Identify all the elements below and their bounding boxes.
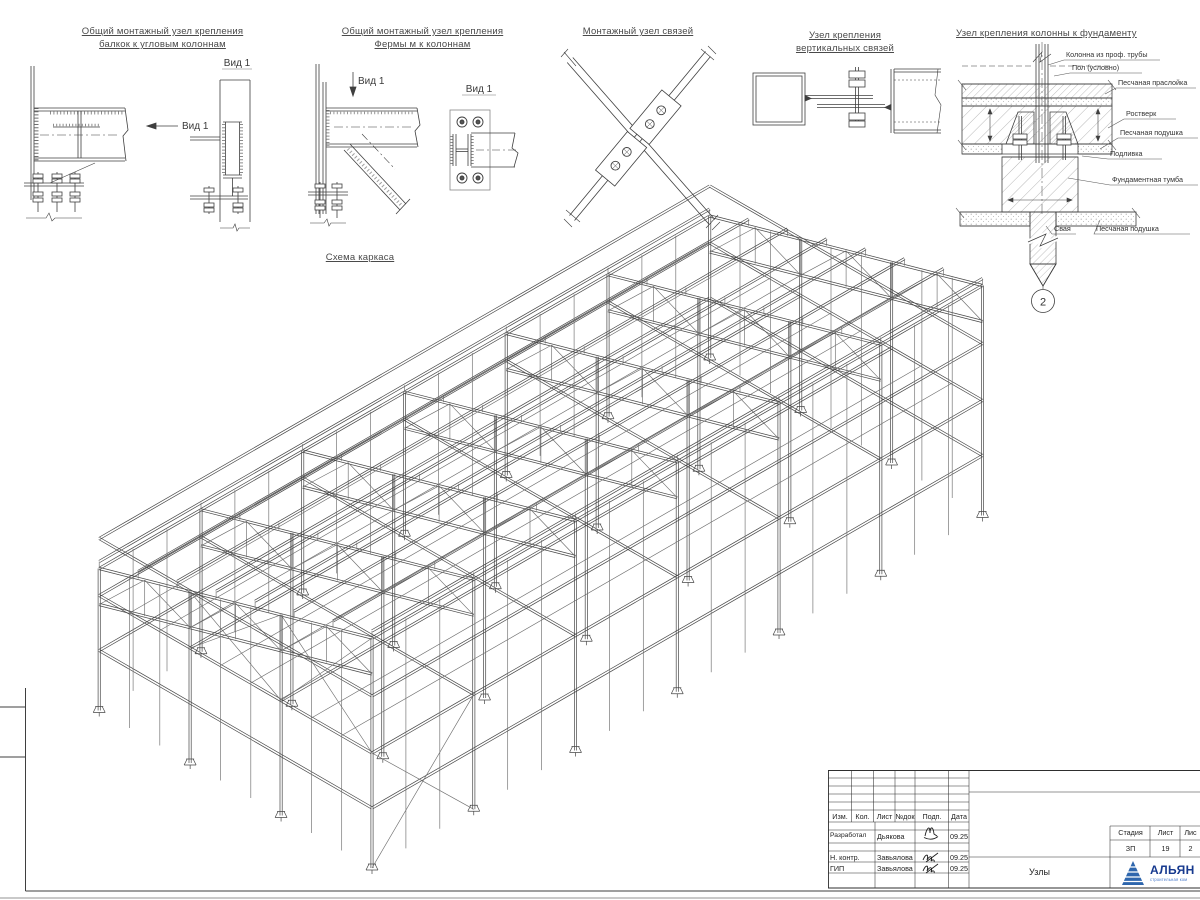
tb-sheets-label: Лис (1181, 829, 1200, 836)
tb-date-developer: 09.25 (949, 833, 969, 840)
logo-triangle-icon (1121, 861, 1145, 885)
logo-subtext: строительная ком (1150, 877, 1187, 882)
tb-name-checker: Завьялова (877, 854, 915, 861)
tb-sheets-value: 2 (1181, 845, 1200, 852)
tb-header-ndok: №док (894, 813, 916, 820)
drawing-sheet: { "sheet": { "line_color": "#3f3f3f", "b… (0, 0, 1200, 900)
tb-stage-label: Стадия (1111, 829, 1150, 836)
tb-header-kol: Кол. (852, 813, 873, 820)
tb-role-checker: Н. контр. (830, 854, 875, 861)
tb-doc-title: Узлы (969, 868, 1110, 877)
tb-stage-value: ЗП (1111, 845, 1150, 852)
title-block: Изм. Кол. Лист №док Подп. Дата Разработа… (828, 770, 1200, 891)
tb-name-gip: Завьялова (877, 865, 915, 872)
tb-role-gip: ГИП (830, 865, 875, 872)
tb-header-list: Лист (874, 813, 895, 820)
tb-date-gip: 09.25 (949, 865, 969, 872)
tb-sheet-value: 19 (1151, 845, 1180, 852)
tb-name-developer: Дьякова (877, 833, 915, 840)
tb-role-developer: Разработал (830, 833, 875, 840)
tb-sheet-label: Лист (1151, 829, 1180, 836)
logo-text: АЛЬЯН (1150, 863, 1195, 877)
tb-date-checker: 09.25 (949, 854, 969, 861)
tb-header-podp: Подп. (916, 813, 948, 820)
tb-header-data: Дата (949, 813, 969, 820)
tb-header-izm: Изм. (829, 813, 851, 820)
signature-strokes (923, 828, 938, 873)
